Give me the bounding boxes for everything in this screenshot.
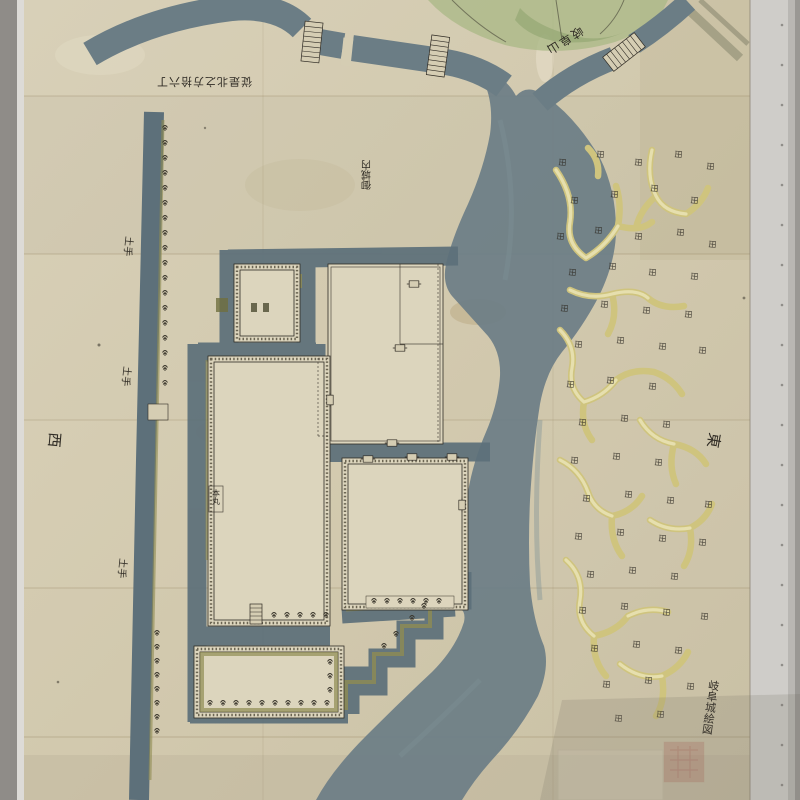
stitch-dot bbox=[781, 464, 784, 467]
paddy-mark: 田 bbox=[633, 232, 643, 241]
bailey-northwest bbox=[234, 264, 300, 342]
direction-east-label: 東 bbox=[703, 431, 723, 449]
paddy-mark: 田 bbox=[627, 566, 637, 575]
paddy-mark: 田 bbox=[647, 268, 657, 277]
stitch-dot bbox=[781, 424, 784, 427]
distance-note-label: 従是北之方拾六丁 bbox=[156, 75, 252, 89]
bailey-southeast bbox=[342, 454, 468, 610]
paddy-mark: 田 bbox=[673, 150, 683, 159]
paddy-mark: 田 bbox=[599, 300, 609, 309]
direction-west-label: 西 bbox=[45, 432, 64, 449]
gate-icon bbox=[445, 454, 459, 460]
stitch-dot bbox=[781, 504, 784, 507]
paddy-mark: 田 bbox=[565, 380, 575, 389]
stitch-dot bbox=[781, 104, 784, 107]
gate-icon bbox=[405, 454, 419, 460]
moat-note-label: 御城内 bbox=[362, 159, 374, 191]
paddy-mark: 田 bbox=[559, 304, 569, 313]
paddy-mark: 田 bbox=[611, 452, 621, 461]
paddy-mark: 田 bbox=[573, 340, 583, 349]
paddy-mark: 田 bbox=[661, 608, 671, 617]
paddy-mark: 田 bbox=[705, 162, 715, 171]
paddy-mark: 田 bbox=[607, 262, 617, 271]
paddy-mark: 田 bbox=[573, 532, 583, 541]
paddy-mark: 田 bbox=[689, 272, 699, 281]
stitch-dot bbox=[781, 224, 784, 227]
gate-icon bbox=[407, 281, 421, 287]
paddy-mark: 田 bbox=[615, 336, 625, 345]
levee-gate-platform bbox=[148, 404, 168, 420]
paddy-mark: 田 bbox=[615, 528, 625, 537]
stitch-dot bbox=[781, 304, 784, 307]
scan-shadow bbox=[540, 694, 800, 800]
paddy-mark: 田 bbox=[683, 310, 693, 319]
paddy-mark: 田 bbox=[697, 346, 707, 355]
paddy-mark: 田 bbox=[685, 682, 695, 691]
stitch-dot bbox=[781, 344, 784, 347]
stitch-dot bbox=[781, 544, 784, 547]
bridge-icon bbox=[301, 21, 323, 63]
paddy-mark: 田 bbox=[609, 190, 619, 199]
paddy-mark: 田 bbox=[657, 534, 667, 543]
gate-icon bbox=[459, 498, 465, 512]
bailey-south bbox=[194, 646, 344, 718]
paddy-mark: 田 bbox=[567, 268, 577, 277]
inner-bailey-label: 本丸 bbox=[212, 488, 221, 506]
paddy-mark: 田 bbox=[653, 458, 663, 467]
paddy-mark: 田 bbox=[569, 456, 579, 465]
paddy-mark: 田 bbox=[577, 606, 587, 615]
stitch-dot bbox=[781, 664, 784, 667]
castle-map-scan: 本丸 bbox=[0, 0, 800, 800]
paddy-mark: 田 bbox=[593, 226, 603, 235]
paddy-mark: 田 bbox=[689, 196, 699, 205]
scanned-map-page: 本丸 bbox=[0, 0, 800, 800]
paddy-mark: 田 bbox=[641, 306, 651, 315]
paddy-mark: 田 bbox=[555, 232, 565, 241]
paddy-mark: 田 bbox=[649, 184, 659, 193]
stitch-dot bbox=[781, 184, 784, 187]
bailey-northeast bbox=[328, 264, 443, 446]
paddy-mark: 田 bbox=[581, 494, 591, 503]
paddy-mark: 田 bbox=[589, 644, 599, 653]
paddy-mark: 田 bbox=[647, 382, 657, 391]
paddy-mark: 田 bbox=[623, 490, 633, 499]
paddy-mark: 田 bbox=[675, 228, 685, 237]
gate-icon bbox=[385, 440, 399, 446]
stitch-dot bbox=[781, 144, 784, 147]
paddy-mark: 田 bbox=[569, 196, 579, 205]
gate-icon bbox=[393, 345, 407, 351]
paddy-mark: 田 bbox=[707, 240, 717, 249]
gate-icon bbox=[361, 456, 375, 462]
paddy-mark: 田 bbox=[595, 150, 605, 159]
gate-icon bbox=[327, 393, 333, 407]
stitch-dot bbox=[781, 64, 784, 67]
stitch-dot bbox=[781, 264, 784, 267]
stitch-dot bbox=[781, 584, 784, 587]
paddy-mark: 田 bbox=[699, 612, 709, 621]
stairs-icon bbox=[250, 604, 262, 624]
paddy-mark: 田 bbox=[703, 500, 713, 509]
stitch-dot bbox=[781, 24, 784, 27]
paddy-mark: 田 bbox=[669, 572, 679, 581]
paddy-mark: 田 bbox=[557, 158, 567, 167]
paddy-mark: 田 bbox=[577, 418, 587, 427]
paddy-mark: 田 bbox=[673, 646, 683, 655]
stitch-dot bbox=[781, 624, 784, 627]
paddy-mark: 田 bbox=[585, 570, 595, 579]
paddy-mark: 田 bbox=[619, 602, 629, 611]
paddy-mark: 田 bbox=[619, 414, 629, 423]
paddy-mark: 田 bbox=[661, 420, 671, 429]
bailey-honmaru: 本丸 bbox=[208, 356, 333, 626]
paddy-mark: 田 bbox=[665, 496, 675, 505]
paddy-mark: 田 bbox=[657, 342, 667, 351]
paddy-mark: 田 bbox=[697, 538, 707, 547]
stitch-dot bbox=[781, 384, 784, 387]
paddy-mark: 田 bbox=[633, 158, 643, 167]
paddy-mark: 田 bbox=[601, 680, 611, 689]
paddy-mark: 田 bbox=[631, 640, 641, 649]
scan-edge-left bbox=[0, 0, 17, 800]
paddy-mark: 田 bbox=[605, 376, 615, 385]
paddy-mark: 田 bbox=[643, 676, 653, 685]
